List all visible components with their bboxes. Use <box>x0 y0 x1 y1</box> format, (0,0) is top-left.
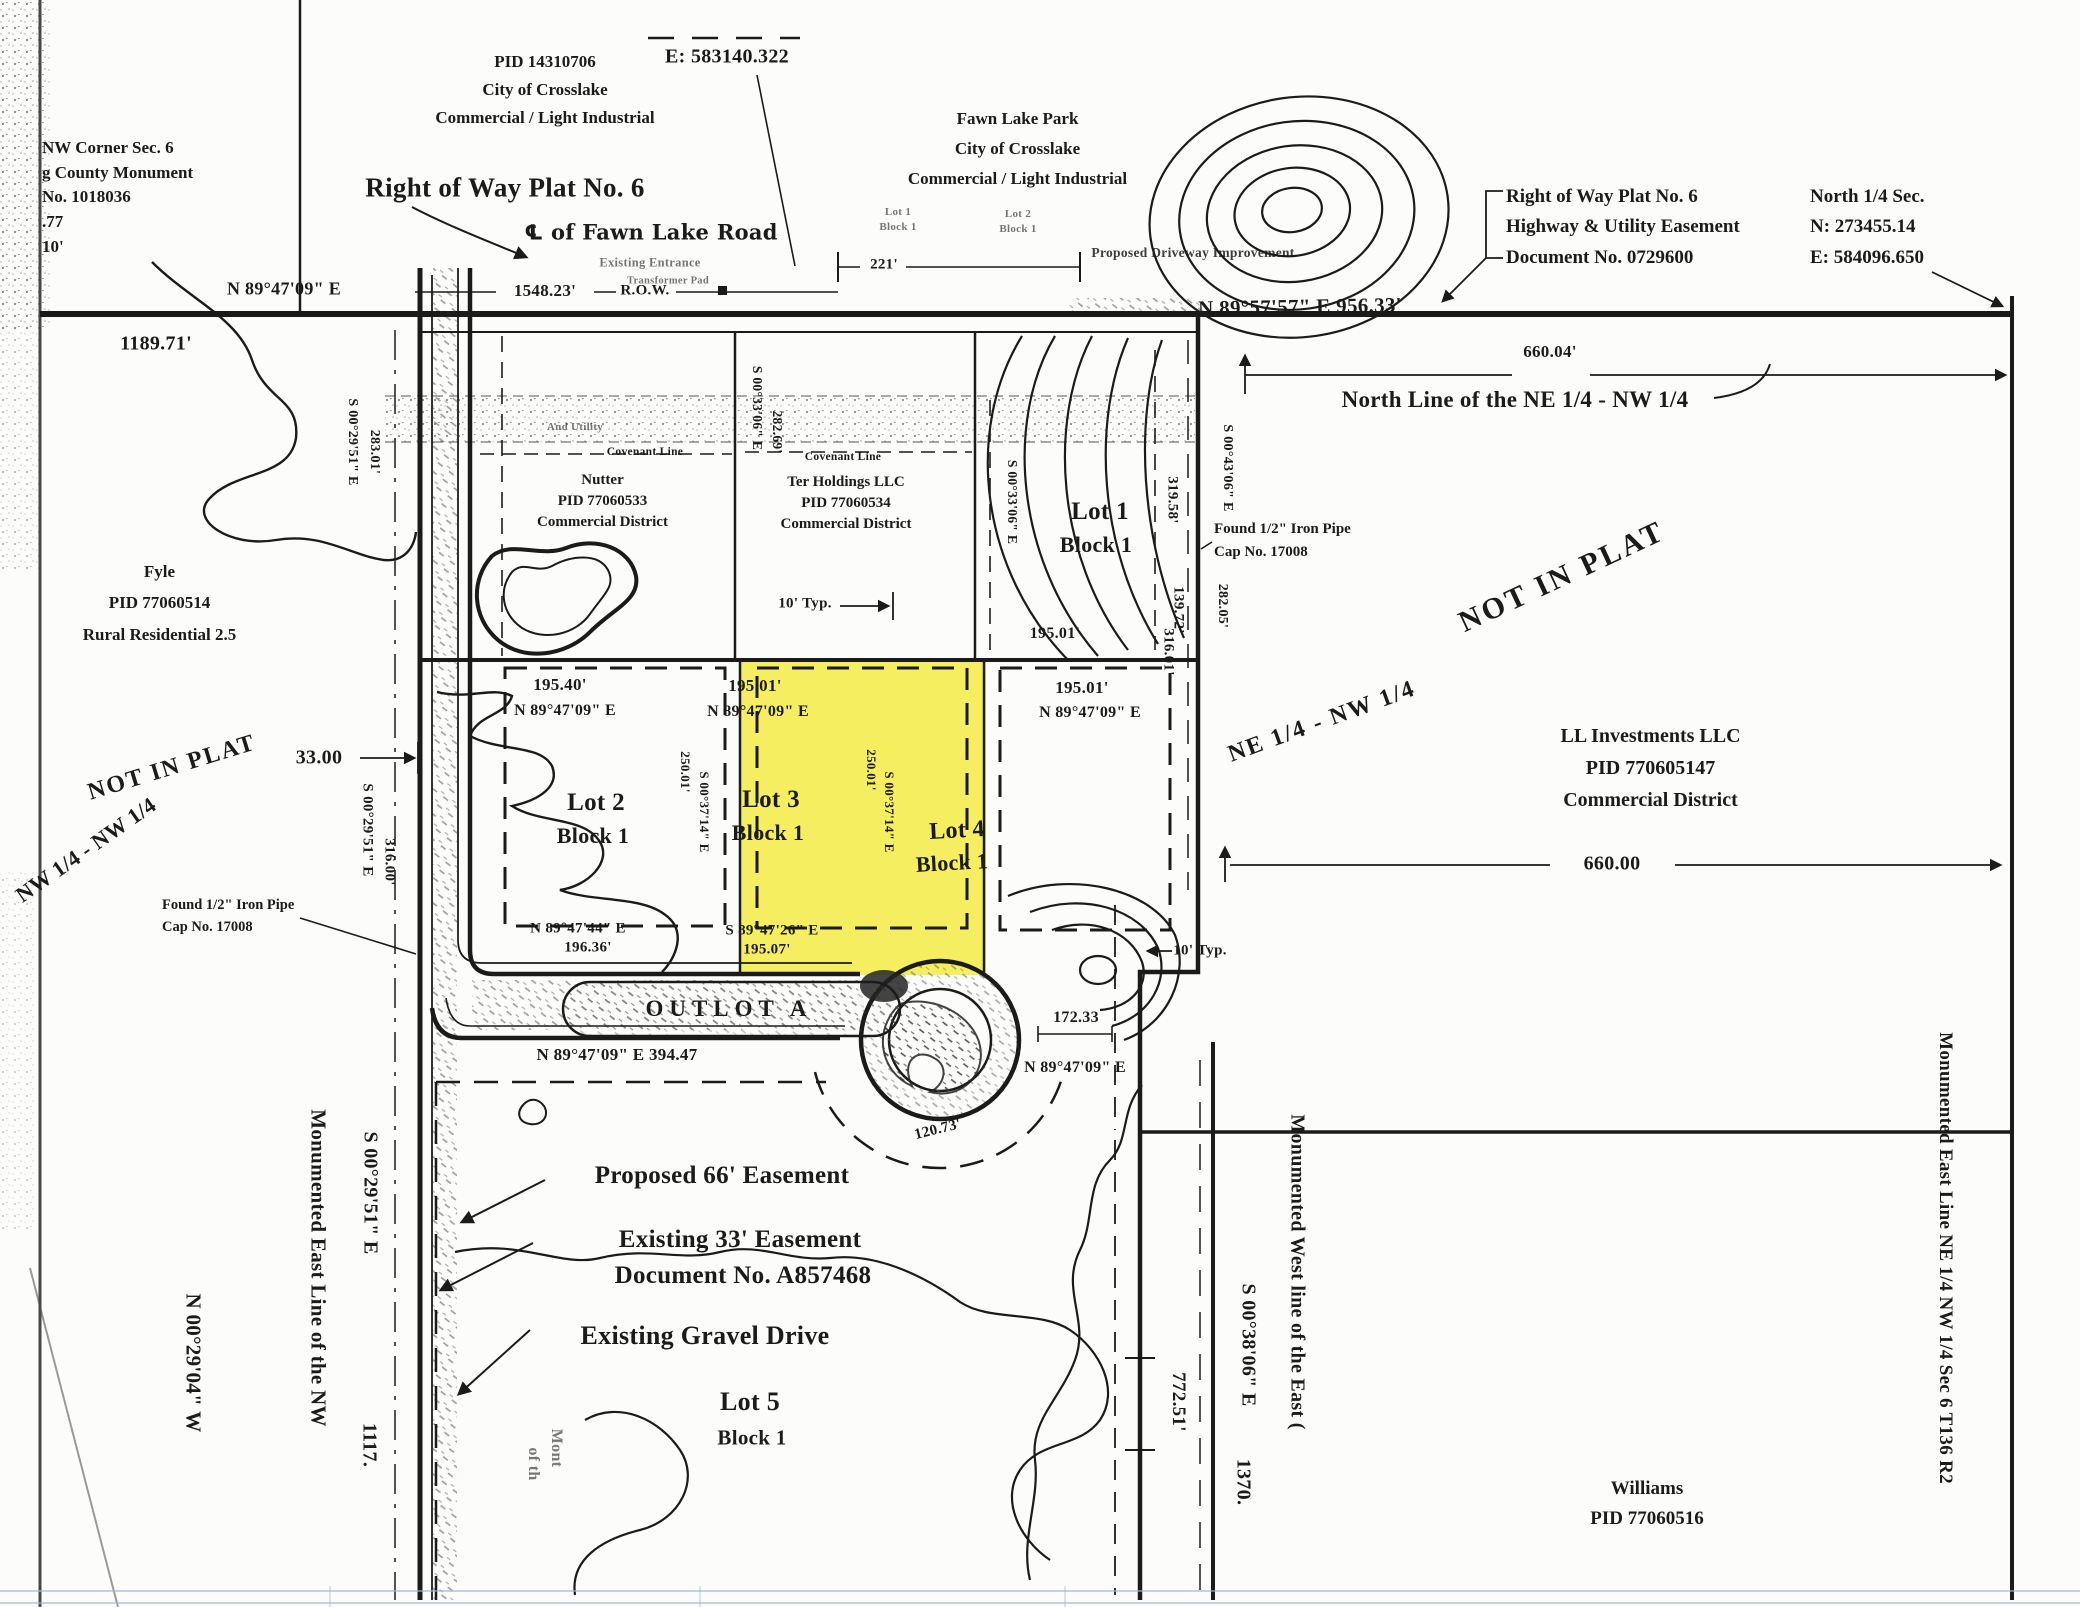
note-line: g County Monument <box>42 161 193 186</box>
dim-772: 772.51' <box>1167 1372 1189 1432</box>
bearing-lot1-west: S 00°33'06" E <box>1004 460 1020 544</box>
note-line: Cap No. 17008 <box>162 916 294 938</box>
bearing-lot4-north: N 89°47'09" E <box>1039 704 1141 722</box>
dim-319: 319.58' <box>1164 476 1181 524</box>
note-line: Found 1/2" Iron Pipe <box>1214 518 1351 541</box>
proposed-66-easement-label: Proposed 66' Easement <box>595 1162 849 1190</box>
dim-250-east: 250.01' <box>863 749 879 790</box>
park-city: City of Crosslake <box>875 134 1160 164</box>
dim-1189: 1189.71' <box>120 333 192 356</box>
parcel-city: City of Crosslake <box>400 76 690 104</box>
dim-660-04: 660.04' <box>1523 342 1577 362</box>
owner-name: Williams <box>1562 1474 1732 1504</box>
transformer-pad-label: Transformer Pad <box>627 276 709 287</box>
lot2-block-label: Block 1 <box>557 823 629 849</box>
owner-name: Fyle <box>52 556 267 587</box>
lot4-block-label: Block 1 <box>915 848 989 878</box>
lot1-label: Lot 1 <box>1071 498 1129 526</box>
partial-label: of th <box>524 1447 542 1480</box>
lot2-label: Lot 2 <box>567 789 625 817</box>
owner-zoning: Commercial District <box>762 514 930 535</box>
dim-1117: 1117. <box>358 1423 381 1467</box>
parcel-zoning: Commercial / Light Industrial <box>400 104 690 132</box>
bearing-lot2-north: N 89°47'09" E <box>514 702 616 720</box>
scanner-grid-artifact <box>0 1586 2080 1607</box>
bearing-top-west: N 89°47'09" E <box>227 279 341 300</box>
owner-zoning: Commercial District <box>1528 784 1773 816</box>
owner-zoning: Commercial District <box>520 512 685 533</box>
bearing-top-east: N 89°57'57" E 956.33' <box>1198 293 1402 322</box>
williams-parcel-note: Williams PID 77060516 <box>1562 1474 1732 1535</box>
bearing-282-69: S 00°33'06" E <box>749 366 765 450</box>
bearing-316: S 00°29'51" E <box>359 783 376 876</box>
lot3-label: Lot 3 <box>742 786 800 814</box>
ll-investments-parcel-note: LL Investments LLC PID 770605147 Commerc… <box>1528 720 1773 816</box>
row-easement-note: Right of Way Plat No. 6 Highway & Utilit… <box>1506 182 1740 273</box>
note-line: 10' <box>42 235 193 260</box>
plat-map: NW Corner Sec. 6 g County Monument No. 1… <box>0 0 2080 1607</box>
dim-221: 221' <box>870 257 898 274</box>
monumented-east-line-nw-label: Monumented East Line of the NW <box>306 1109 331 1427</box>
dim-316: 316.00' <box>381 838 398 886</box>
lot1-block-label: Block 1 <box>1060 532 1132 558</box>
fawn-lake-park-note: Fawn Lake Park City of Crosslake Commerc… <box>875 104 1160 193</box>
note-line: Document No. 0729600 <box>1506 243 1740 273</box>
outlot-label: OUTLOT A <box>645 996 812 1022</box>
dim-lot3-south: 195.07' <box>743 942 791 959</box>
found-pipe-note-left: Found 1/2" Iron Pipe Cap No. 17008 <box>162 894 294 939</box>
dim-lot4-north: 195.01' <box>1055 678 1109 698</box>
dim-172: 172.33 <box>1053 1009 1099 1027</box>
dim-33: 33.00 <box>296 747 343 770</box>
note-line: N: 273455.14 <box>1810 212 1925 242</box>
dim-282-05: 282.05' <box>1214 584 1230 629</box>
owner-name: Nutter <box>520 470 685 491</box>
owner-pid: PID 77060516 <box>1562 1504 1732 1534</box>
partial-label: Mont <box>547 1429 565 1468</box>
nw-corner-monument-note: NW Corner Sec. 6 g County Monument No. 1… <box>42 136 193 259</box>
dim-1548: 1548.23' <box>514 281 576 301</box>
parcel-nw-note: PID 14310706 City of Crosslake Commercia… <box>400 48 690 132</box>
coordinate-east: E: 583140.322 <box>665 46 789 69</box>
note-line: Cap No. 17008 <box>1214 541 1351 564</box>
existing-gravel-drive-label: Existing Gravel Drive <box>581 1321 830 1351</box>
bearing-left-edge: S 00°29'51" E <box>359 1131 382 1254</box>
dim-139: 139.72' <box>1170 586 1187 634</box>
existing-entrance-label: Existing Entrance <box>599 256 700 271</box>
row-block-label: Block 1 <box>999 223 1036 235</box>
dim-250-west: 250.01' <box>677 751 693 792</box>
bearing-283: S 00°29'51" E <box>344 398 360 485</box>
row-lot-label: Lot 2 <box>1005 208 1031 220</box>
dim-lot3-north: 195.01' <box>728 676 782 696</box>
lot4-label: Lot 4 <box>929 816 986 846</box>
note-line: North 1/4 Sec. <box>1810 182 1925 212</box>
nutter-parcel-note: Nutter PID 77060533 Commercial District <box>520 470 685 533</box>
owner-pid: PID 77060534 <box>762 493 930 514</box>
dim-1370: 1370. <box>1232 1459 1255 1506</box>
fawn-lake-road-centerline: ℄ of Fawn Lake Road <box>524 220 778 245</box>
found-pipe-note-right: Found 1/2" Iron Pipe Cap No. 17008 <box>1214 518 1351 565</box>
easement-document-label: Document No. A857468 <box>615 1262 872 1290</box>
row-lot-label: Lot 1 <box>885 206 911 218</box>
covenant-line-label: Covenant Line <box>805 451 881 463</box>
existing-33-easement-label: Existing 33' Easement <box>619 1226 861 1254</box>
north-line-label: North Line of the NE 1/4 - NW 1/4 <box>1342 387 1689 413</box>
park-zoning: Commercial / Light Industrial <box>875 164 1160 194</box>
bearing-lot2-south: N 89°47'44" E <box>530 921 626 938</box>
owner-pid: PID 77060514 <box>52 587 267 618</box>
ter-holdings-parcel-note: Ter Holdings LLC PID 77060534 Commercial… <box>762 472 930 535</box>
note-line: .77 <box>42 210 193 235</box>
typ10-label: 10' Typ. <box>1173 943 1227 960</box>
note-line: No. 1018036 <box>42 185 193 210</box>
bearing-250-west: S 00°37'14" E <box>696 771 712 852</box>
dim-lot2-south: 196.36' <box>564 940 612 957</box>
bearing-west-edge: N 00°29'04" W <box>181 1293 206 1432</box>
owner-zoning: Rural Residential 2.5 <box>52 619 267 650</box>
dim-lot2-north: 195.40' <box>533 675 587 695</box>
transformer-pad-marker <box>718 286 727 295</box>
owner-pid: PID 77060533 <box>520 491 685 512</box>
proposed-driveway-label: Proposed Driveway Improvement <box>1091 245 1294 261</box>
bearing-250-east: S 00°37'14" E <box>881 771 897 852</box>
utility-band-fill <box>385 396 1195 442</box>
note-line: Right of Way Plat No. 6 <box>1506 182 1740 212</box>
dim-660-00: 660.00 <box>1584 853 1641 876</box>
lot3-block-label: Block 1 <box>732 820 804 846</box>
owner-pid: PID 770605147 <box>1528 752 1773 784</box>
fyle-parcel-note: Fyle PID 77060514 Rural Residential 2.5 <box>52 556 267 650</box>
dim-394: N 89°47'09" E 394.47 <box>536 1045 697 1065</box>
dim-282-69: 282.69' <box>769 411 785 454</box>
bearing-right-inner: S 00°38'06" E <box>1237 1283 1260 1406</box>
typ10-label: 10' Typ. <box>778 596 832 613</box>
owner-name: LL Investments LLC <box>1528 720 1773 752</box>
bearing-lot3-south: S 89°47'26" E <box>725 923 818 940</box>
note-line: Highway & Utility Easement <box>1506 212 1740 242</box>
row-plat-title: Right of Way Plat No. 6 <box>365 173 644 204</box>
parcel-pid: PID 14310706 <box>400 48 690 76</box>
dim-283: 283.01' <box>366 430 382 475</box>
bearing-lot3-north: N 89°47'09" E <box>707 703 809 721</box>
note-line: NW Corner Sec. 6 <box>42 136 193 161</box>
utility-band-label: And Utility <box>547 421 603 433</box>
covenant-line-label: Covenant Line <box>607 446 683 458</box>
row-block-label: Block 1 <box>879 221 916 233</box>
north-quarter-corner-note: North 1/4 Sec. N: 273455.14 E: 584096.65… <box>1810 182 1925 273</box>
monumented-west-line-east-label: Monumented West line of the East ( <box>1286 1114 1309 1429</box>
lot5-label: Lot 5 <box>720 1387 780 1417</box>
lot5-block-label: Block 1 <box>717 1426 786 1451</box>
note-line: E: 584096.650 <box>1810 243 1925 273</box>
monumented-east-line-ne-label: Monumented East Line NE 1/4 NW 1/4 Sec 6… <box>1934 1032 1956 1484</box>
park-name: Fawn Lake Park <box>875 104 1160 134</box>
owner-name: Ter Holdings LLC <box>762 472 930 493</box>
note-line: Found 1/2" Iron Pipe <box>162 894 294 916</box>
wetland-lines <box>152 262 1142 1595</box>
bearing-282-05: S 00°43'06" E <box>1219 424 1235 511</box>
bearing-culdesac: N 89°47'09" E <box>1024 1059 1126 1077</box>
dim-316-01: 316.01' <box>1160 628 1177 676</box>
dim-lot1-south: 195.01' <box>1030 625 1081 643</box>
